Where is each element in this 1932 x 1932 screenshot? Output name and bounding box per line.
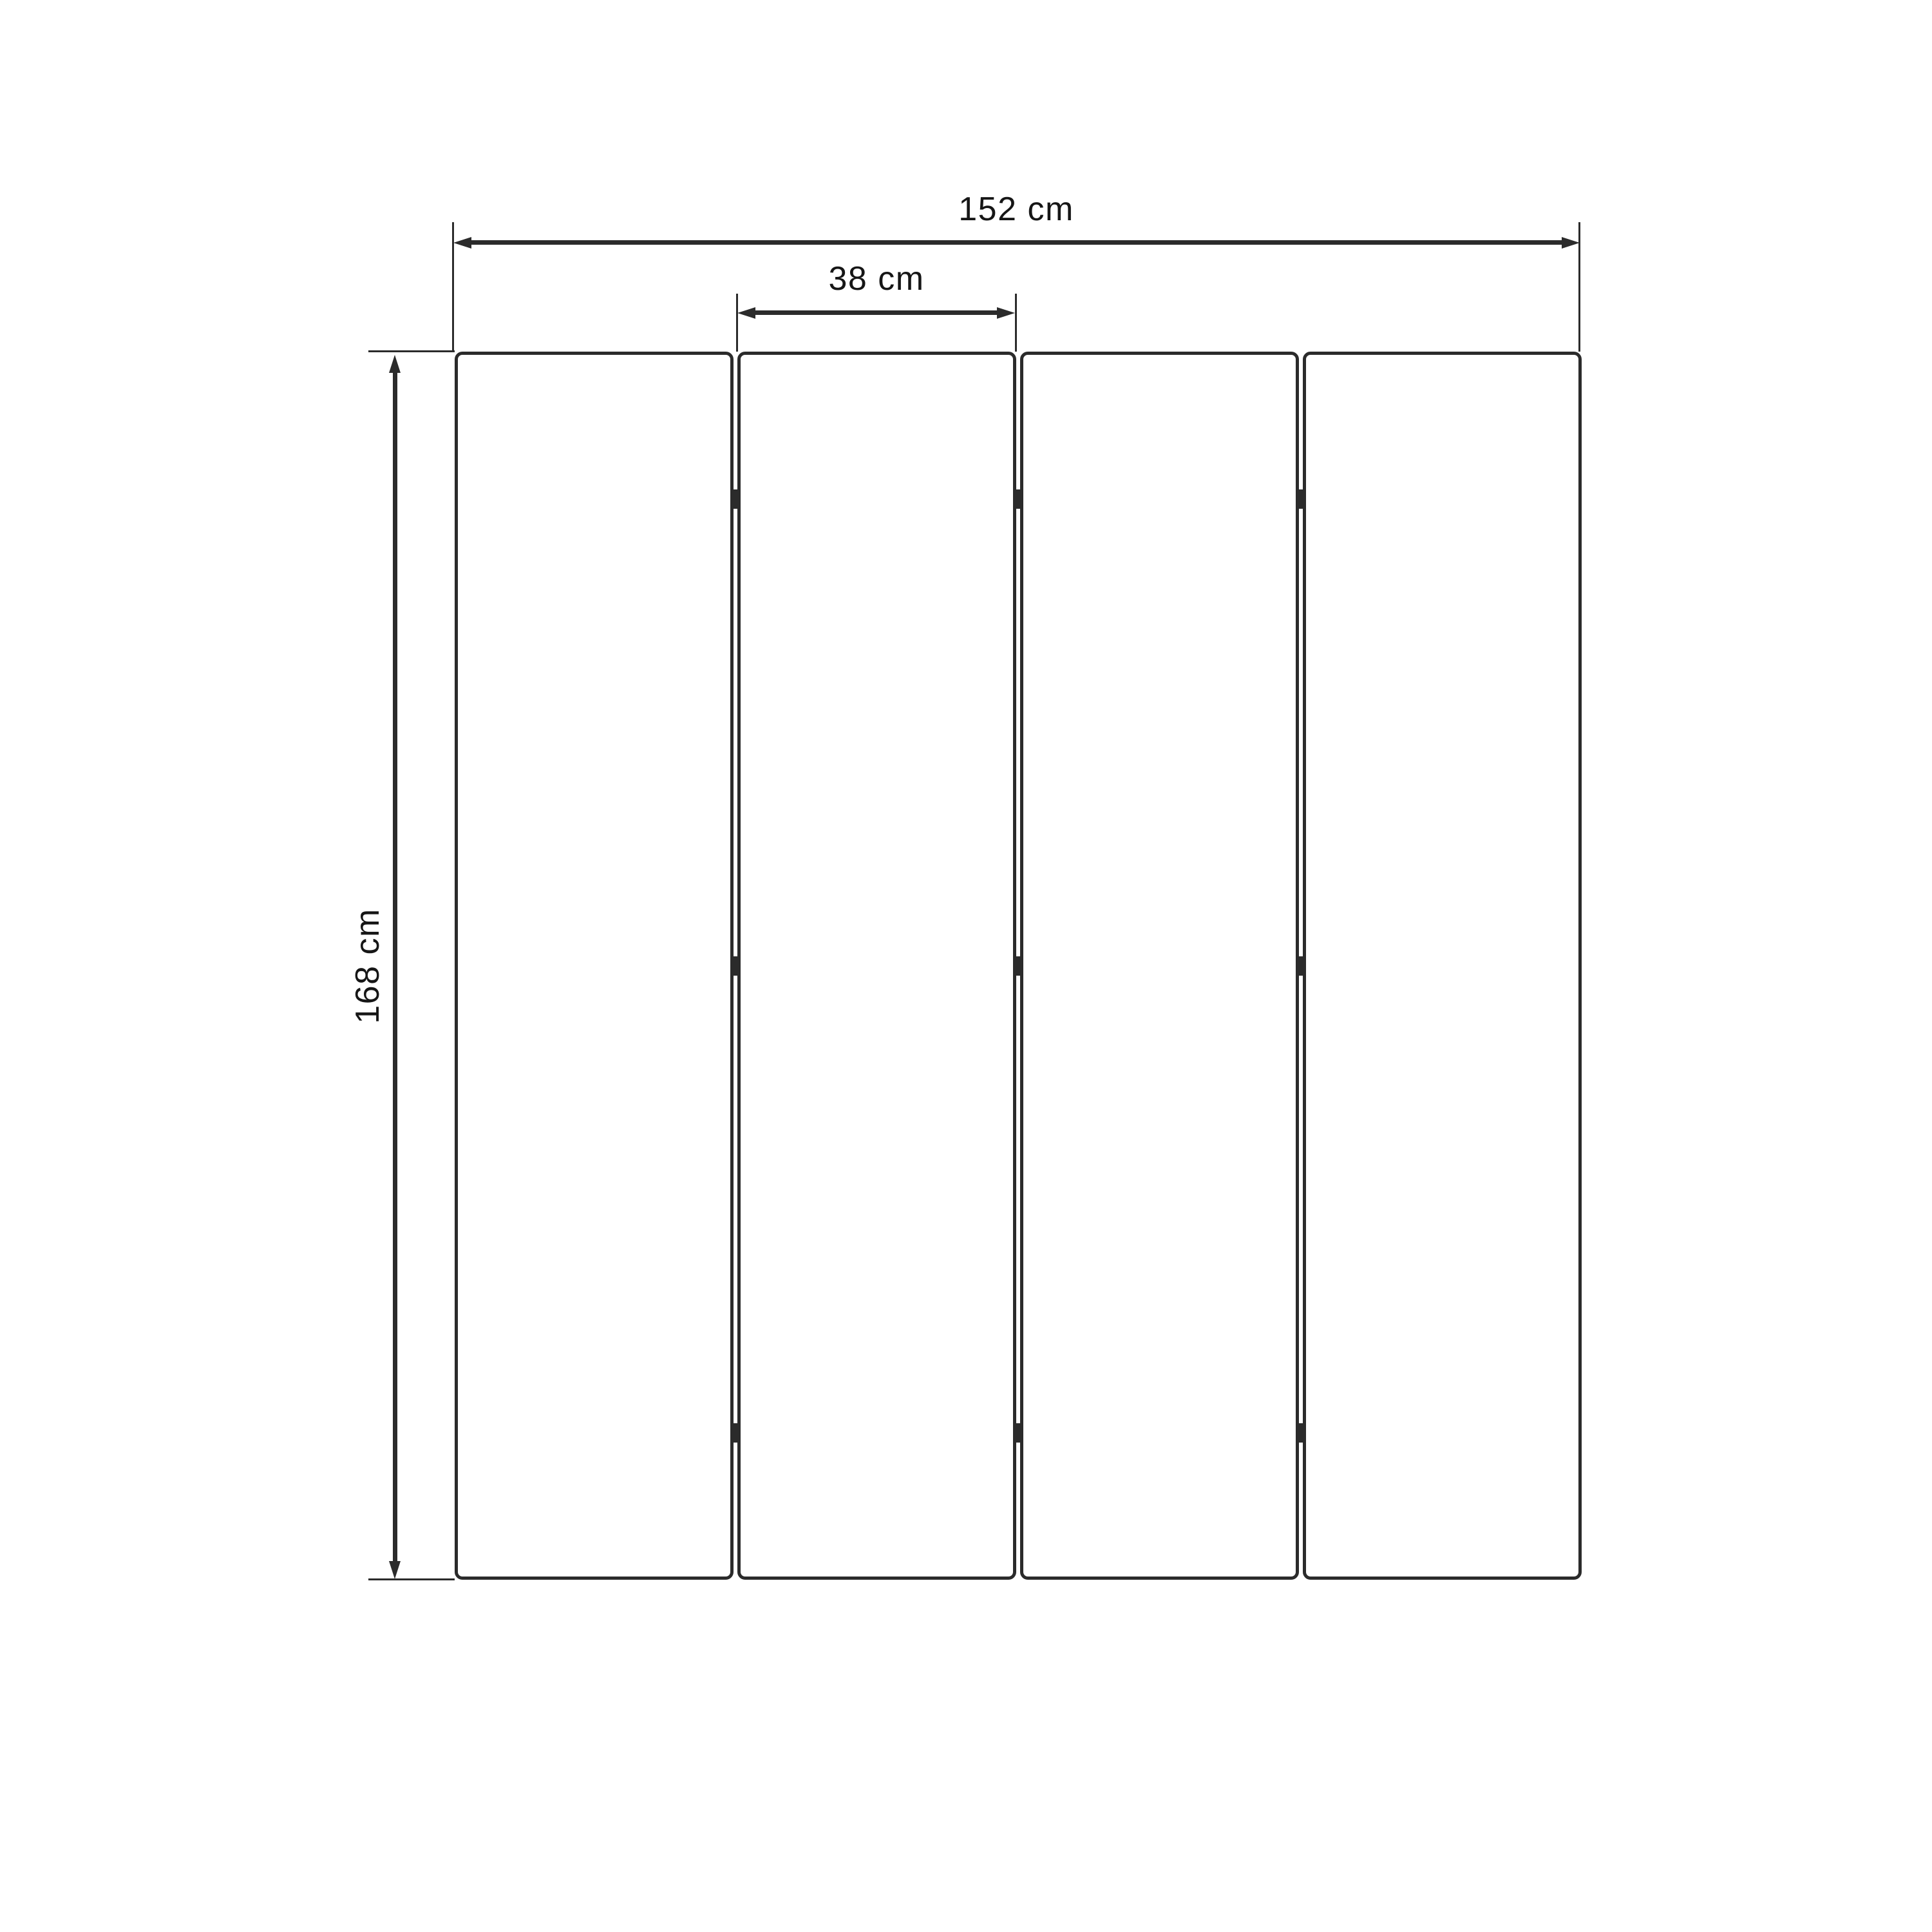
arrowhead-down-icon — [389, 1561, 401, 1579]
divider-panel — [1303, 352, 1582, 1580]
hinge — [1296, 489, 1305, 509]
height-dimension-line — [393, 364, 397, 1570]
dimension-drawing: 152 cm 38 cm 168 cm — [0, 0, 1932, 1932]
hinge — [1014, 1423, 1023, 1443]
extension-line — [1015, 294, 1017, 352]
arrowhead-right-icon — [1562, 237, 1580, 249]
panel-width-dimension-line — [747, 310, 1006, 315]
panel-width-label: 38 cm — [780, 260, 973, 298]
total-width-dimension-line — [464, 240, 1571, 245]
hinge — [731, 489, 740, 509]
extension-line — [368, 350, 455, 352]
total-width-label: 152 cm — [920, 191, 1113, 228]
hinge — [1014, 956, 1023, 976]
arrowhead-left-icon — [453, 237, 471, 249]
arrowhead-up-icon — [389, 355, 401, 373]
height-label: 168 cm — [349, 869, 386, 1063]
divider-panel — [737, 352, 1016, 1580]
hinge — [1014, 489, 1023, 509]
hinge — [731, 956, 740, 976]
arrowhead-left-icon — [737, 307, 755, 319]
hinge — [731, 1423, 740, 1443]
extension-line — [736, 294, 738, 352]
hinge — [1296, 956, 1305, 976]
divider-panel — [455, 352, 734, 1580]
divider-panel — [1020, 352, 1299, 1580]
arrowhead-right-icon — [997, 307, 1015, 319]
hinge — [1296, 1423, 1305, 1443]
extension-line — [368, 1578, 455, 1580]
